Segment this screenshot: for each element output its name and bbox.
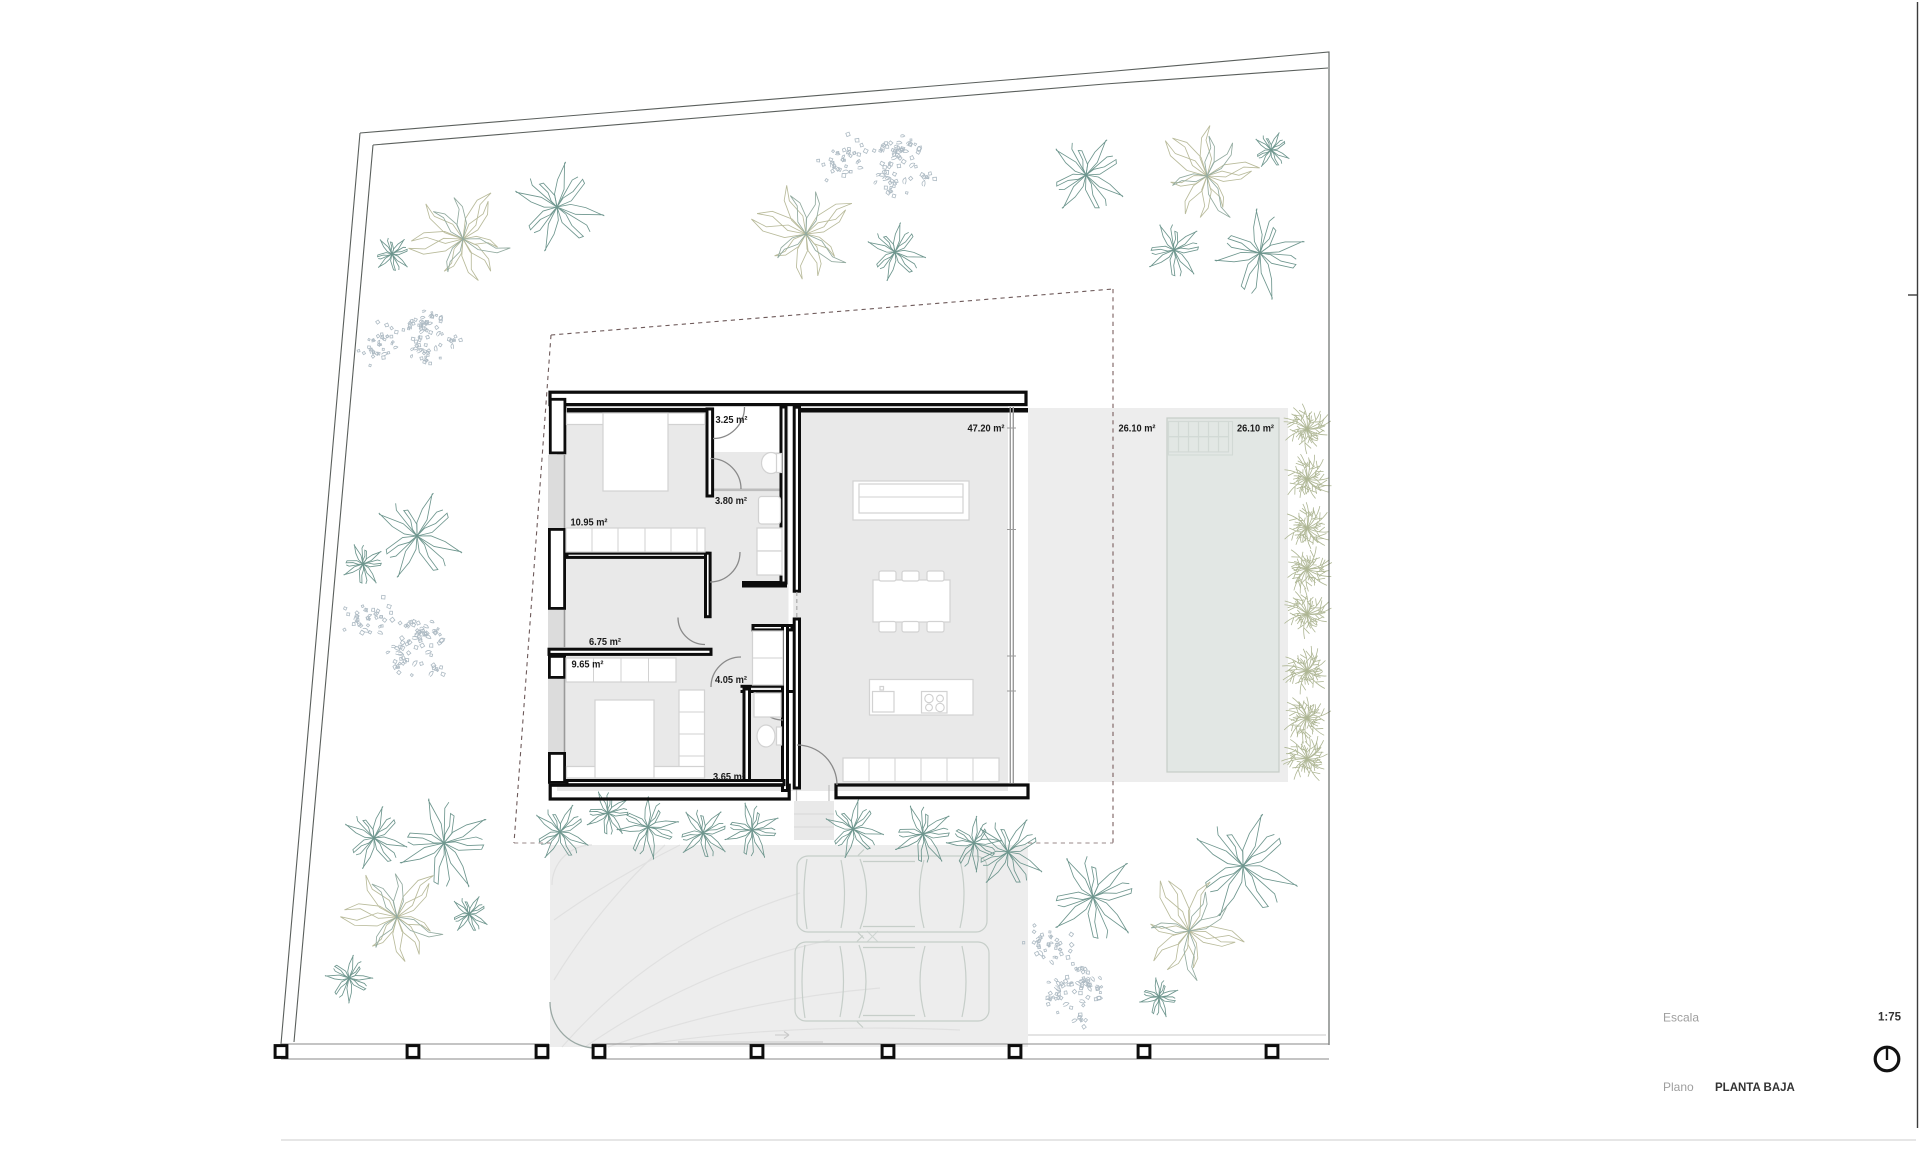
svg-text:3.65 m²: 3.65 m² bbox=[713, 771, 745, 783]
svg-text:10.95 m²: 10.95 m² bbox=[571, 517, 608, 529]
svg-text:3.25 m²: 3.25 m² bbox=[716, 414, 748, 426]
svg-text:3.80 m²: 3.80 m² bbox=[715, 495, 747, 507]
svg-text:47.20 m²: 47.20 m² bbox=[968, 423, 1005, 435]
svg-text:6.75 m²: 6.75 m² bbox=[589, 636, 621, 648]
svg-text:Plano: Plano bbox=[1663, 1080, 1694, 1094]
svg-text:1:75: 1:75 bbox=[1878, 1012, 1902, 1024]
svg-text:26.10 m²: 26.10 m² bbox=[1119, 423, 1156, 435]
svg-text:Escala: Escala bbox=[1663, 1011, 1699, 1025]
svg-text:PLANTA BAJA: PLANTA BAJA bbox=[1715, 1082, 1795, 1094]
svg-text:9.65 m²: 9.65 m² bbox=[572, 659, 604, 671]
svg-text:26.10 m²: 26.10 m² bbox=[1237, 423, 1274, 435]
svg-text:4.05 m²: 4.05 m² bbox=[715, 674, 747, 686]
